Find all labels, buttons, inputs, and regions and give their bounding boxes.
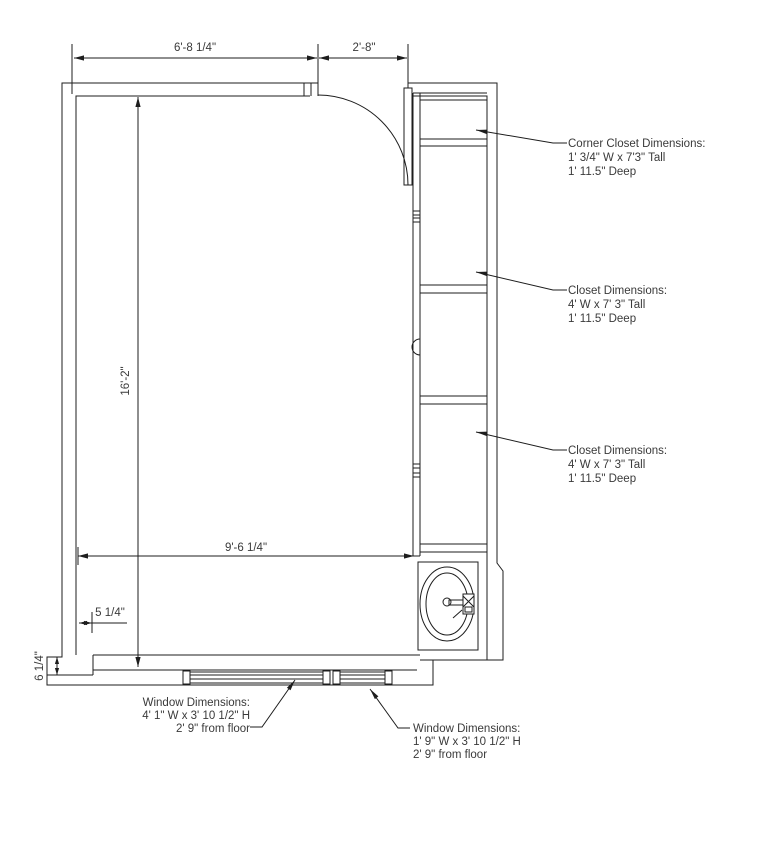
door-swing-arc: [318, 95, 408, 185]
annotation-closet-upper: Closet Dimensions: 4' W x 7' 3" Tall 1' …: [568, 285, 667, 325]
annotation-corner-closet: Corner Closet Dimensions: 1' 3/4" W x 7'…: [568, 138, 705, 178]
dim-wall-step-label: 6 1/4": [34, 651, 46, 681]
closet-middle-box: [420, 293, 487, 396]
leader-window-left: [250, 680, 295, 727]
dim-room-width-label: 9'-6 1/4": [225, 542, 267, 554]
outer-wall-outline: [47, 83, 503, 685]
dimension-top-left: 6'-8 1/4": [72, 42, 318, 94]
dim-wall-notch-label: 5 1/4": [95, 607, 125, 619]
leader-closet-upper: [476, 272, 567, 290]
closet-left-wall: [413, 93, 420, 556]
dimension-wall-notch: 5 1/4": [79, 607, 127, 633]
window-right-frame: [340, 672, 385, 683]
closet-hinge-mark: [413, 218, 420, 222]
annotation-line: 1' 11.5" Deep: [568, 313, 636, 325]
annotation-line: 4' 1" W x 3' 10 1/2" H: [142, 710, 250, 722]
closet-upper-box: [420, 146, 487, 285]
closet-hinge-mark: [413, 211, 420, 215]
annotation-line: 2' 9" from floor: [176, 723, 250, 735]
annotation-window-right: Window Dimensions: 1' 9" W x 3' 10 1/2" …: [413, 723, 521, 761]
dim-door-opening-label: 2'-8": [353, 42, 376, 54]
windows: [183, 671, 392, 684]
faucet-handle: [453, 610, 462, 618]
annotation-closet-lower: Closet Dimensions: 4' W x 7' 3" Tall 1' …: [568, 445, 667, 485]
annotation-line: 1' 3/4" W x 7'3" Tall: [568, 152, 665, 164]
dimension-room-length: 16'-2": [120, 97, 141, 667]
closets: [412, 93, 487, 556]
closet-hinge-mark: [413, 473, 420, 477]
dimension-door-opening: 2'-8": [319, 42, 408, 86]
dim-room-length-label: 16'-2": [120, 366, 132, 395]
window-right-glazing: [340, 675, 385, 679]
inner-wall-top-left: [76, 96, 310, 655]
vanity: [418, 562, 478, 650]
leader-corner-closet: [476, 130, 567, 143]
annotation-line: Window Dimensions:: [143, 697, 250, 709]
window-right-cap: [333, 671, 340, 684]
annotation-window-left: Window Dimensions: 4' 1" W x 3' 10 1/2" …: [142, 697, 250, 735]
annotation-line: 1' 11.5" Deep: [568, 473, 636, 485]
window-left-frame: [190, 672, 323, 683]
dim-top-left-label: 6'-8 1/4": [174, 42, 216, 54]
window-left-cap: [323, 671, 330, 684]
door-jamb-left-cap: [304, 83, 318, 96]
annotation-line: 4' W x 7' 3" Tall: [568, 459, 645, 471]
annotation-line: Corner Closet Dimensions:: [568, 138, 705, 150]
corner-closet-box: [420, 100, 487, 139]
floor-plan-page: 6'-8 1/4" 2'-8" 16'-2" 9'-6 1/4" 5 1/4" …: [0, 0, 764, 855]
annotation-line: Window Dimensions:: [413, 723, 520, 735]
door-panel: [404, 88, 412, 185]
window-left-cap: [183, 671, 190, 684]
annotation-line: 1' 9" W x 3' 10 1/2" H: [413, 736, 521, 748]
leader-closet-lower: [476, 432, 567, 450]
closet-hinge-mark: [413, 464, 420, 468]
leader-window-right: [370, 689, 410, 728]
floor-plan-drawing: 6'-8 1/4" 2'-8" 16'-2" 9'-6 1/4" 5 1/4" …: [0, 0, 764, 855]
walls: [47, 83, 503, 685]
annotation-line: Closet Dimensions:: [568, 445, 667, 457]
annotation-line: Closet Dimensions:: [568, 285, 667, 297]
door: [318, 88, 412, 185]
annotation-line: 1' 11.5" Deep: [568, 166, 636, 178]
closet-lower-box: [420, 404, 487, 544]
window-left-glazing: [190, 675, 323, 679]
dimension-room-width: 9'-6 1/4": [78, 542, 414, 565]
annotation-line: 2' 9" from floor: [413, 749, 487, 761]
window-right-cap: [385, 671, 392, 684]
annotation-line: 4' W x 7' 3" Tall: [568, 299, 645, 311]
